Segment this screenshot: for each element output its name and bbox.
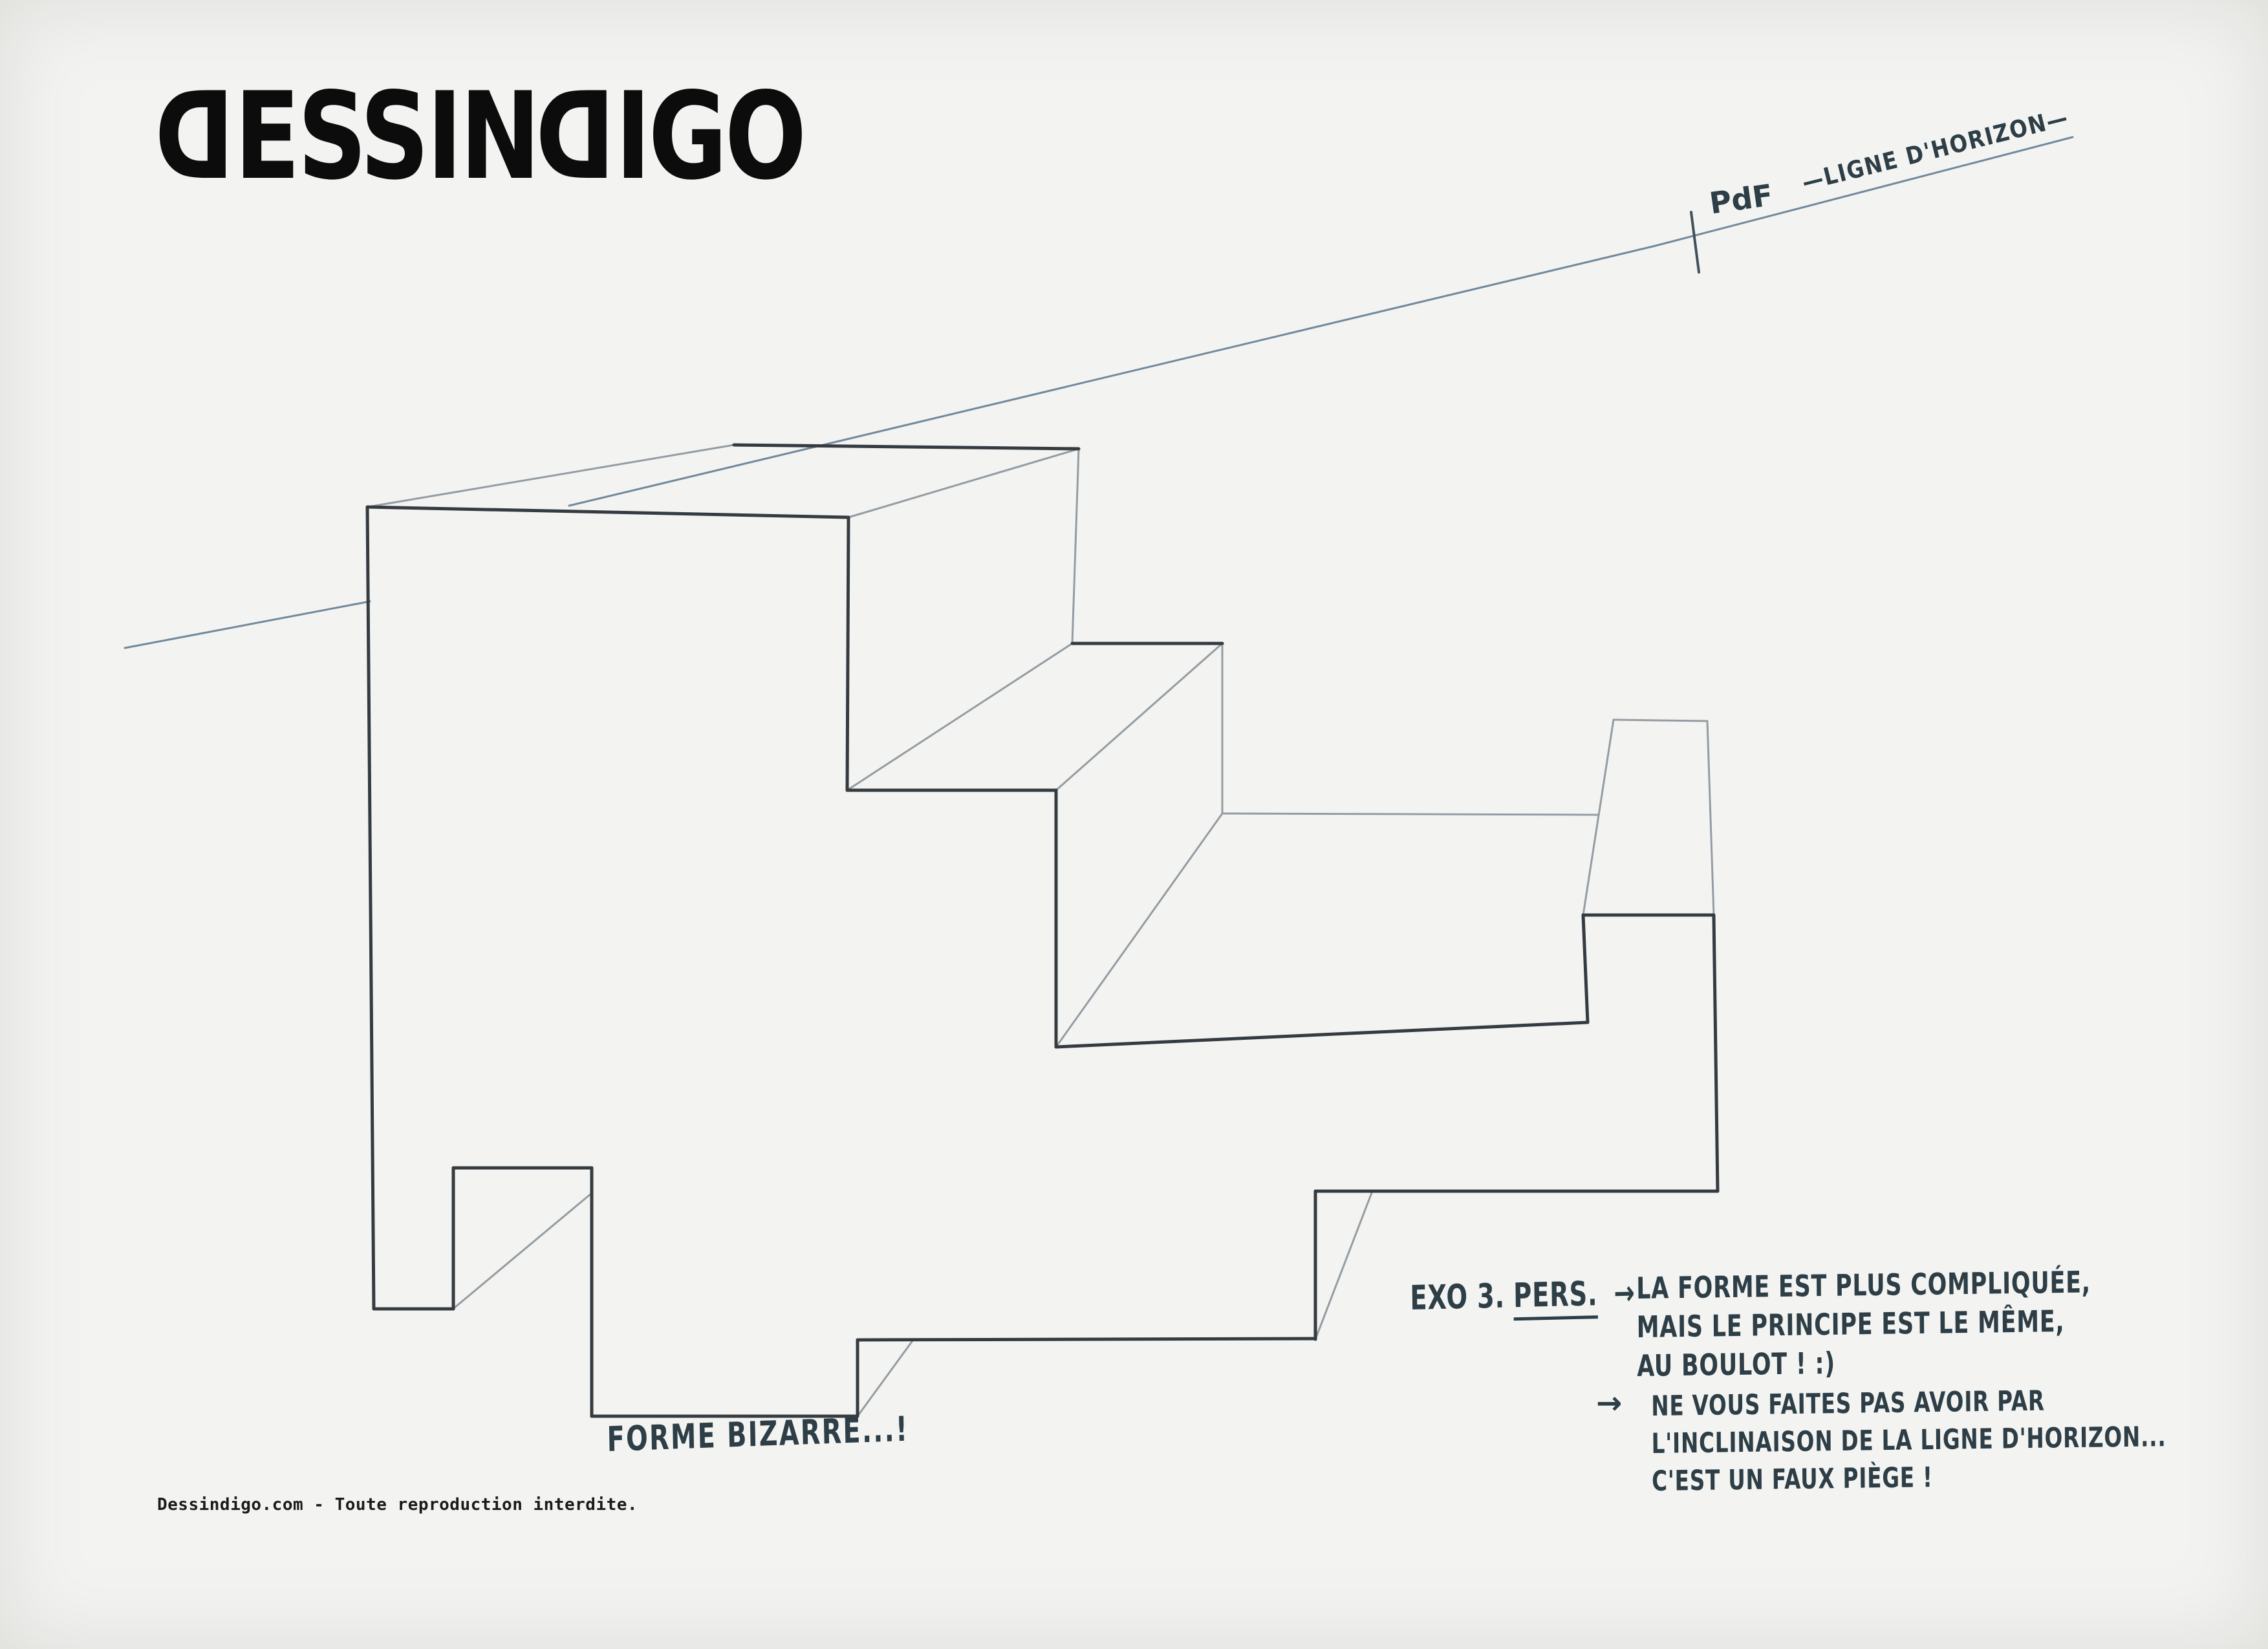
pencil-edge-dark	[858, 1339, 1315, 1340]
pencil-edge-dark	[1583, 915, 1588, 1022]
note-line: AU BOULOT ! :)	[1637, 1340, 2091, 1385]
note-line: LA FORME EST PLUS COMPLIQUÉE,	[1636, 1262, 2091, 1308]
pencil-edge-light	[1315, 1191, 1372, 1339]
pencil-edge-light	[1072, 449, 1079, 643]
note-warning: NE VOUS FAITES PAS AVOIR PAR L'INCLINAIS…	[1651, 1381, 2166, 1500]
exercise-number: EXO 3.	[1410, 1277, 1505, 1318]
logo-letter: I	[427, 66, 460, 206]
logo-letter-mirrored: D	[538, 76, 616, 197]
logo-letter: O	[725, 66, 805, 206]
logo-letter: E	[235, 66, 298, 206]
pencil-edge-light	[1222, 814, 1597, 815]
pencil-edge-light	[858, 1340, 913, 1416]
note-line: C'EST UN FAUX PIÈGE !	[1652, 1456, 2166, 1500]
pencil-edge-light	[847, 643, 1072, 790]
arrow-icon: →	[1596, 1385, 1622, 1421]
note-line: MAIS LE PRINCIPE EST LE MÊME,	[1636, 1301, 2091, 1346]
pencil-edge-light	[848, 449, 1079, 517]
scanned-sheet: DESSINDIGO —LIGNE D'HORIZON— PdF EXO 3.P…	[0, 0, 2268, 1649]
exercise-title: EXO 3.PERS.→	[1410, 1274, 1636, 1318]
logo-letter: S	[297, 66, 360, 206]
logo-letter: S	[360, 66, 427, 206]
pencil-edge-light	[1707, 721, 1714, 915]
logo-letter: N	[460, 66, 538, 206]
pencil-edge-dark	[367, 507, 848, 517]
pencil-edge-dark	[847, 517, 848, 790]
logo-letter-mirrored: D	[157, 76, 235, 197]
pencil-edge-dark	[1056, 1022, 1588, 1047]
horizon-line	[125, 601, 370, 648]
pencil-edge-light	[1056, 643, 1222, 790]
arrow-icon: →	[1614, 1274, 1636, 1313]
logo-letter: G	[649, 66, 725, 206]
logo-letter: I	[615, 66, 648, 206]
pencil-edge-light	[1614, 720, 1707, 721]
copyright-footer: Dessindigo.com - Toute reproduction inte…	[157, 1495, 638, 1514]
note-main: LA FORME EST PLUS COMPLIQUÉE, MAIS LE PR…	[1636, 1262, 2091, 1385]
pencil-edge-dark	[367, 507, 374, 1309]
pencil-edge-light	[367, 445, 734, 507]
pencil-edge-light	[455, 1193, 592, 1308]
pencil-edge-dark	[734, 445, 1079, 449]
pencil-edge-light	[1583, 720, 1614, 915]
note-line: NE VOUS FAITES PAS AVOIR PAR	[1651, 1381, 2166, 1425]
pencil-edge-light	[1056, 814, 1222, 1047]
vanishing-point-tick	[1691, 212, 1699, 272]
note-line: L'INCLINAISON DE LA LIGNE D'HORIZON...	[1651, 1418, 2166, 1463]
pencil-edge-dark	[1714, 915, 1718, 1191]
exercise-subject: PERS.	[1513, 1275, 1598, 1320]
dessindigo-logo: DESSINDIGO	[157, 76, 804, 197]
